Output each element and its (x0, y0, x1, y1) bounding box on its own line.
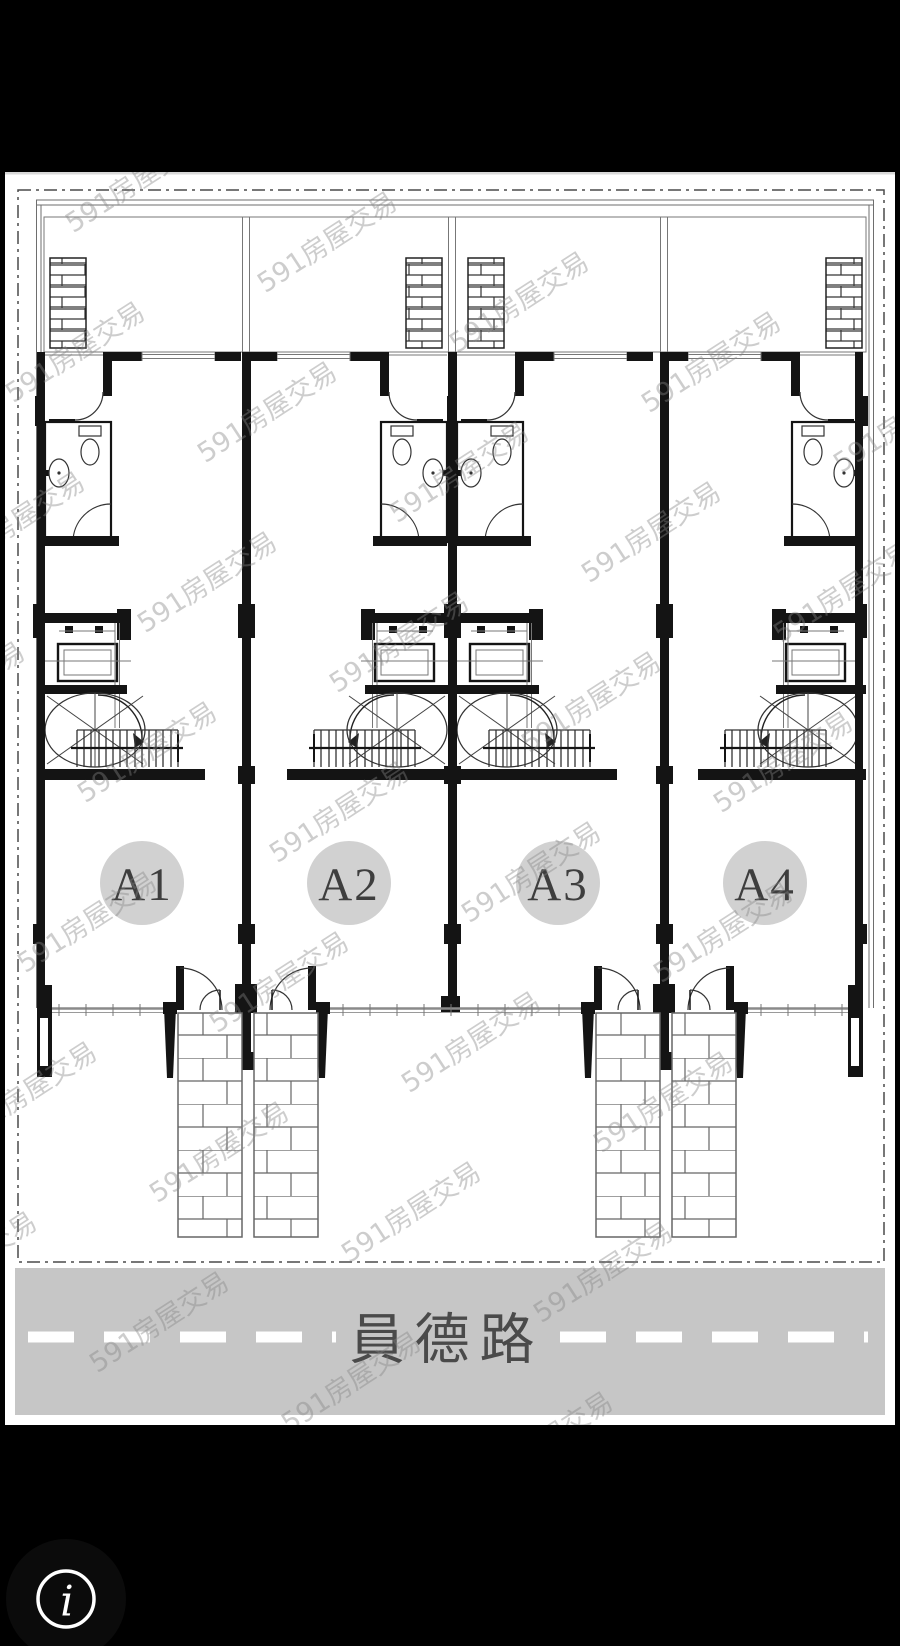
floor-plan-image: A1 A2 A3 A4 員德路 591房屋交易591房屋交易591房屋交易591… (0, 0, 900, 1646)
image-viewer: A1 A2 A3 A4 員德路 591房屋交易591房屋交易591房屋交易591… (0, 0, 900, 1646)
unit-label-a2: A2 (318, 859, 379, 911)
party-wall-a1-a2 (242, 352, 251, 1068)
yard-brick-pier (826, 258, 862, 348)
info-button[interactable]: i (6, 1539, 126, 1646)
info-icon: i (60, 1577, 73, 1626)
party-wall-a2-a3 (448, 352, 457, 1008)
exterior-wall-left (37, 352, 45, 1008)
yard-brick-pier (406, 258, 442, 348)
